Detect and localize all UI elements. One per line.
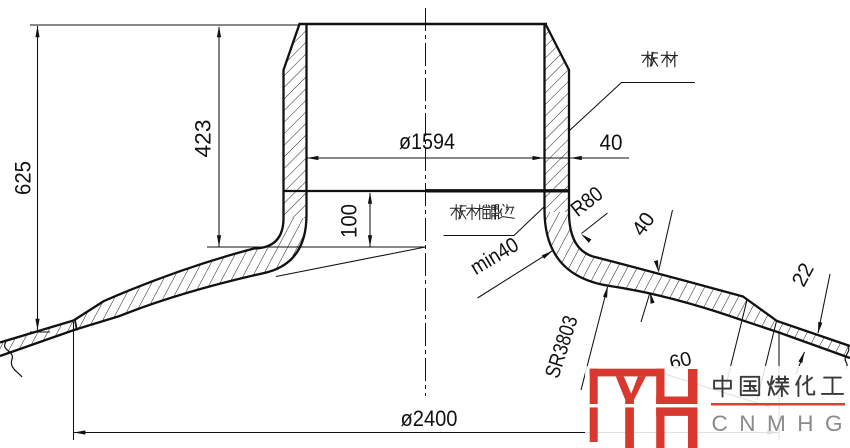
svg-text:ø1594: ø1594 [399, 129, 455, 154]
svg-text:CNMHG: CNMHG [712, 411, 850, 436]
svg-text:423: 423 [191, 120, 216, 158]
svg-text:40: 40 [600, 130, 623, 155]
svg-text:625: 625 [11, 161, 36, 195]
svg-text:100: 100 [337, 204, 362, 238]
svg-text:ø2400: ø2400 [401, 406, 458, 431]
